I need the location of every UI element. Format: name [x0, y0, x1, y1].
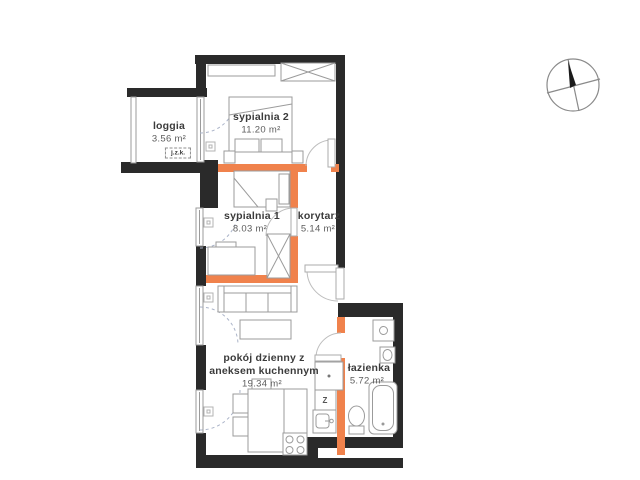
room-area-bedroom2: 11.20 m² [241, 125, 280, 136]
toilet-bowl [349, 406, 365, 426]
bathtub-drain [382, 423, 385, 426]
desk [208, 247, 255, 275]
marker-window-living-lower-glyph [207, 410, 210, 413]
hall-door-leaf [305, 265, 338, 272]
bedroom1-door-leaf [291, 208, 297, 236]
nightstand-right [292, 151, 303, 163]
bed-bedroom1-pillow [279, 174, 289, 204]
room-area-bedroom1: 8.03 m² [233, 224, 267, 235]
wall-left-seg3 [196, 345, 206, 390]
toilet-tank [349, 426, 364, 434]
washing-machine [373, 320, 394, 341]
entrance-door-arc [307, 270, 338, 301]
room-label-bedroom2: sypialnia 2 [233, 111, 289, 123]
room-area-bathroom: 5.72 m² [350, 376, 384, 387]
orange-wall-bedroom1-right-upper [290, 164, 298, 208]
marker-window-living-upper-glyph [207, 296, 210, 299]
sofa [218, 286, 297, 312]
room-label-loggia: loggia [153, 120, 185, 132]
room-label-living-line2: aneksem kuchennym [209, 365, 319, 377]
bedroom2-door-leaf [328, 139, 335, 167]
nightstand-left [224, 151, 235, 163]
shelf [208, 65, 275, 76]
room-area-living: 19.34 m² [242, 379, 282, 390]
orange-wall-bathroom-left-upper [337, 317, 345, 333]
floor-plan-drawing: Z [0, 0, 640, 480]
loggia-wall-top [127, 88, 207, 97]
dishwasher-label: Z [323, 396, 328, 405]
living-upper-window-swing-arc [200, 307, 238, 345]
fridge-dot [328, 375, 331, 378]
dining-chair-left2 [233, 417, 248, 436]
pillow-left [235, 139, 259, 152]
bathroom-door-arc [316, 333, 341, 358]
wall-pillar-below-loggia [200, 160, 218, 208]
floor-plan: Z loggia 3.56 m² sypialnia 2 11.20 m² sy… [0, 0, 640, 480]
room-label-bedroom1: sypialnia 1 [224, 210, 280, 222]
compass-north-needle [568, 61, 576, 88]
wall-bottom [196, 455, 318, 468]
wall-right-upper [336, 55, 345, 268]
room-label-bathroom: łazienka [348, 362, 390, 374]
marker-balcony-door-glyph [209, 145, 212, 148]
room-area-loggia: 3.56 m² [152, 134, 186, 145]
loggia-unit-tag: j.z.k. [165, 148, 191, 159]
kitchen-counter [284, 389, 307, 433]
pillow-right [261, 139, 282, 152]
marker-window-bedroom1-glyph [207, 221, 210, 224]
bathroom-wall-top [338, 303, 403, 317]
room-label-living-line1: pokój dzienny z [223, 352, 304, 364]
dining-chair-left1 [233, 394, 248, 413]
bathroom-wall-bottom [317, 437, 403, 448]
loggia-glazing [131, 97, 136, 163]
coffee-table [240, 320, 291, 339]
entrance-door-leaf [336, 268, 344, 299]
room-label-corridor: korytarz [298, 210, 340, 222]
compass-rose [547, 59, 600, 111]
wall-left-seg2 [196, 246, 206, 286]
room-area-corridor: 5.14 m² [301, 224, 335, 235]
bathroom-door-leaf [315, 355, 341, 361]
dining-table [248, 389, 284, 452]
wall-bottom-outer-edge [306, 458, 403, 468]
